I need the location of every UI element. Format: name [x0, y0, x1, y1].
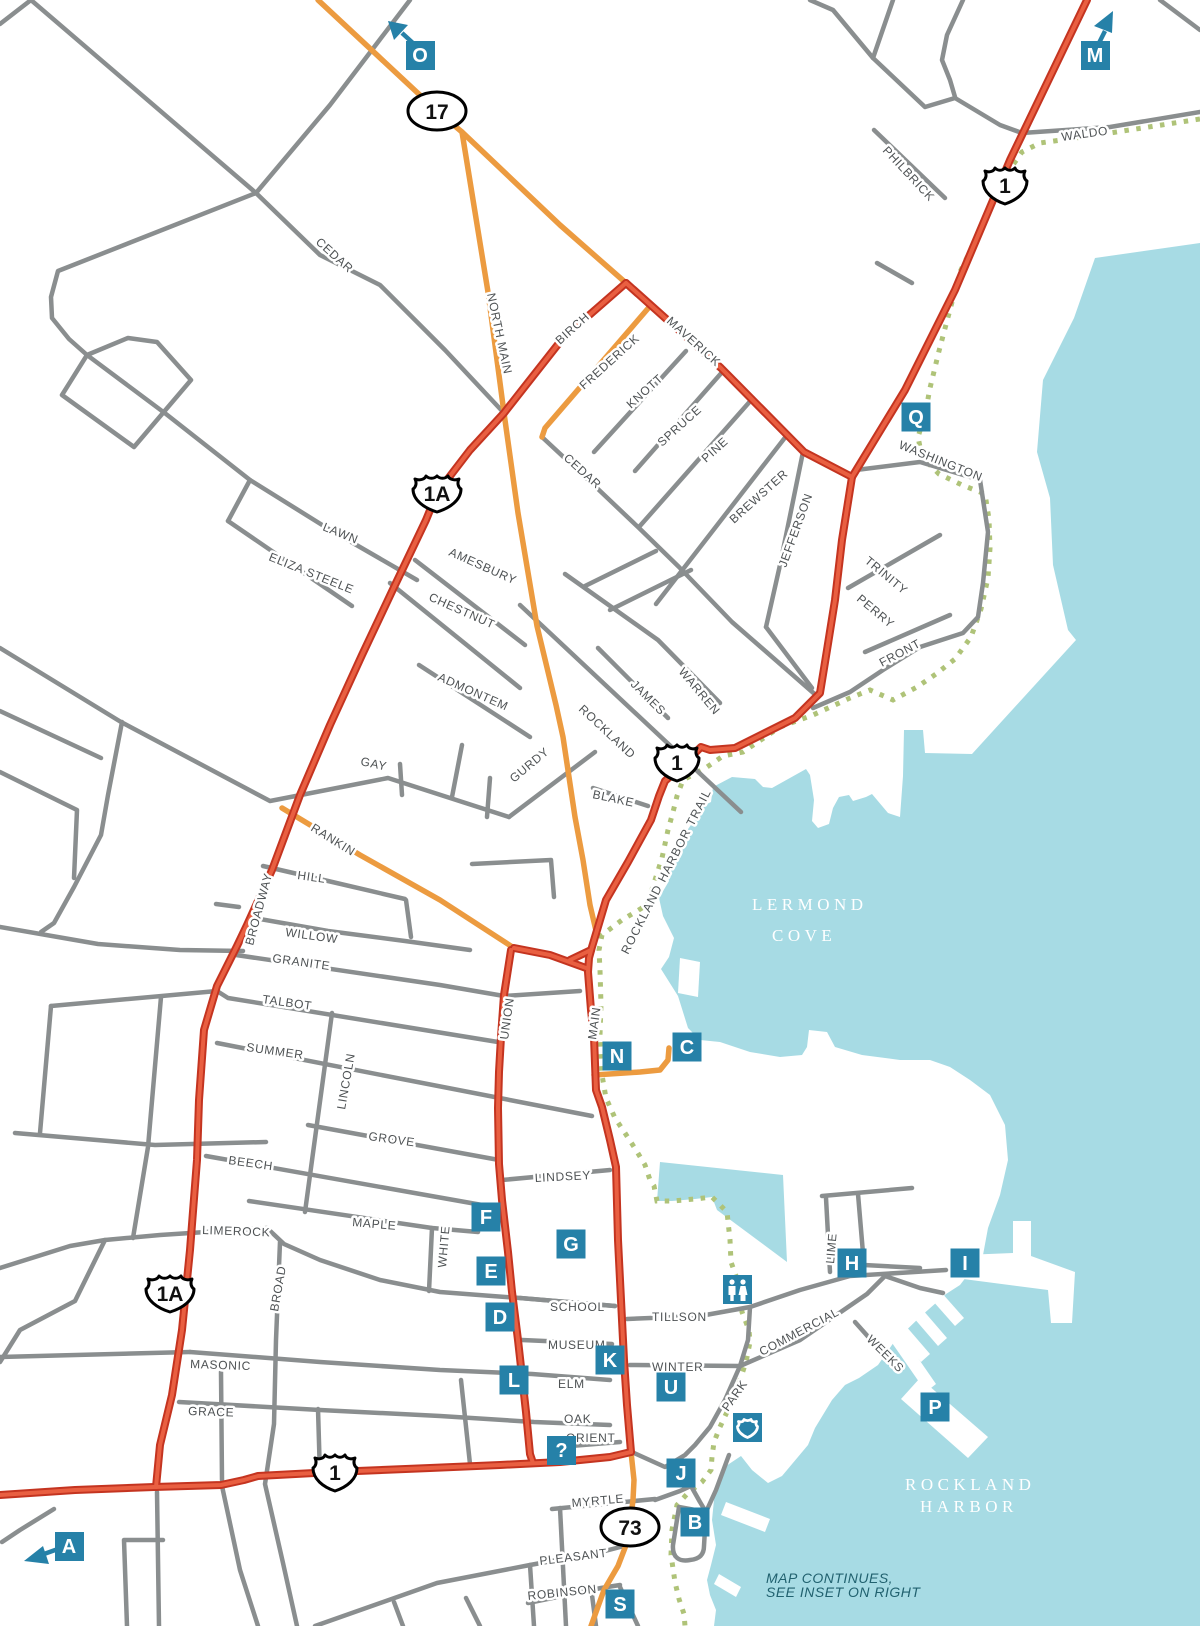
- svg-text:1: 1: [999, 175, 1011, 198]
- svg-text:K: K: [603, 1350, 618, 1372]
- svg-text:P: P: [928, 1397, 941, 1419]
- svg-text:N: N: [610, 1046, 624, 1068]
- svg-text:Q: Q: [908, 407, 924, 429]
- svg-text:HARBOR: HARBOR: [920, 1497, 1018, 1516]
- svg-text:LERMOND: LERMOND: [752, 895, 868, 914]
- svg-text:M: M: [1087, 45, 1104, 67]
- svg-text:SCHOOL: SCHOOL: [550, 1300, 605, 1314]
- svg-text:H: H: [845, 1253, 859, 1275]
- svg-text:J: J: [675, 1463, 686, 1485]
- svg-text:U: U: [664, 1377, 678, 1399]
- svg-text:O: O: [412, 45, 428, 67]
- svg-text:ELM: ELM: [558, 1377, 585, 1391]
- svg-text:?: ?: [555, 1440, 567, 1462]
- svg-text:17: 17: [425, 101, 448, 124]
- svg-text:WINTER: WINTER: [652, 1360, 704, 1374]
- svg-text:LINDSEY: LINDSEY: [534, 1168, 591, 1185]
- svg-text:C: C: [680, 1037, 694, 1059]
- svg-text:ROCKLAND: ROCKLAND: [905, 1475, 1035, 1494]
- svg-text:1: 1: [329, 1462, 341, 1485]
- svg-text:COVE: COVE: [772, 926, 836, 945]
- svg-text:SEE INSET ON RIGHT: SEE INSET ON RIGHT: [766, 1584, 921, 1600]
- svg-text:1A: 1A: [157, 1283, 184, 1306]
- svg-text:G: G: [563, 1234, 579, 1256]
- svg-text:A: A: [62, 1536, 76, 1558]
- svg-text:L: L: [508, 1370, 520, 1392]
- svg-text:GRACE: GRACE: [188, 1404, 235, 1420]
- svg-text:TILLSON: TILLSON: [652, 1310, 707, 1324]
- svg-text:F: F: [480, 1207, 492, 1229]
- svg-text:73: 73: [618, 1517, 641, 1540]
- svg-text:LIME: LIME: [823, 1232, 840, 1264]
- svg-text:I: I: [962, 1253, 968, 1275]
- svg-text:LIMEROCK: LIMEROCK: [202, 1223, 271, 1239]
- svg-text:MASONIC: MASONIC: [190, 1357, 251, 1373]
- svg-text:S: S: [613, 1594, 626, 1616]
- svg-text:D: D: [493, 1307, 507, 1329]
- svg-text:E: E: [484, 1261, 497, 1283]
- svg-text:B: B: [688, 1512, 702, 1534]
- svg-text:1A: 1A: [424, 483, 451, 506]
- svg-text:OAK: OAK: [564, 1412, 591, 1426]
- svg-text:1: 1: [671, 752, 683, 775]
